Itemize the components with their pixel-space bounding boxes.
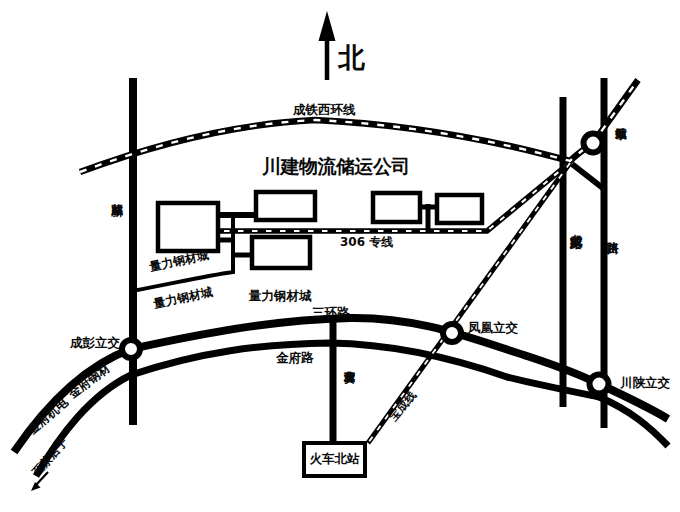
north-railway-station-box: 火车北站 xyxy=(302,441,367,478)
building xyxy=(158,203,218,251)
fenghuang-interchange-circle xyxy=(443,324,461,342)
building xyxy=(437,195,482,223)
north-label: 北 xyxy=(338,44,365,72)
line-306-label: 306 专线 xyxy=(340,236,393,249)
building xyxy=(256,192,315,220)
jinfu-road-label: 金府路 xyxy=(276,351,314,364)
map-canvas xyxy=(0,0,680,512)
building xyxy=(252,237,310,268)
junction-spur xyxy=(572,164,604,189)
building xyxy=(373,193,420,222)
tianhui-station-circle xyxy=(584,134,603,153)
chengpeng-interchange-label: 成彭立交 xyxy=(70,336,120,349)
third-ring-road-label: 三环路 xyxy=(312,306,350,319)
north-railway-station-label: 火车北站 xyxy=(310,451,360,468)
chuanshan-interchange-label: 川陕立交 xyxy=(620,376,670,389)
company-title: 川建物流储运公司 xyxy=(262,157,410,177)
chengpeng-interchange-circle xyxy=(122,340,140,358)
location-map: 北 成铁西环线 川建物流储运公司 新成彭路 306 专线 老成彭路 川陕路 天回… xyxy=(0,0,680,512)
north-arrow-icon xyxy=(319,11,336,80)
chuanshan-interchange-circle xyxy=(590,375,609,394)
lao-chengpeng-road-label: 老成彭路 xyxy=(570,224,583,228)
fenghuang-interchange-label: 凤凰立交 xyxy=(468,321,518,334)
west-ring-railway-label: 成铁西环线 xyxy=(293,103,356,116)
liangli-steel-city-label: 量力钢材城 xyxy=(249,289,312,302)
